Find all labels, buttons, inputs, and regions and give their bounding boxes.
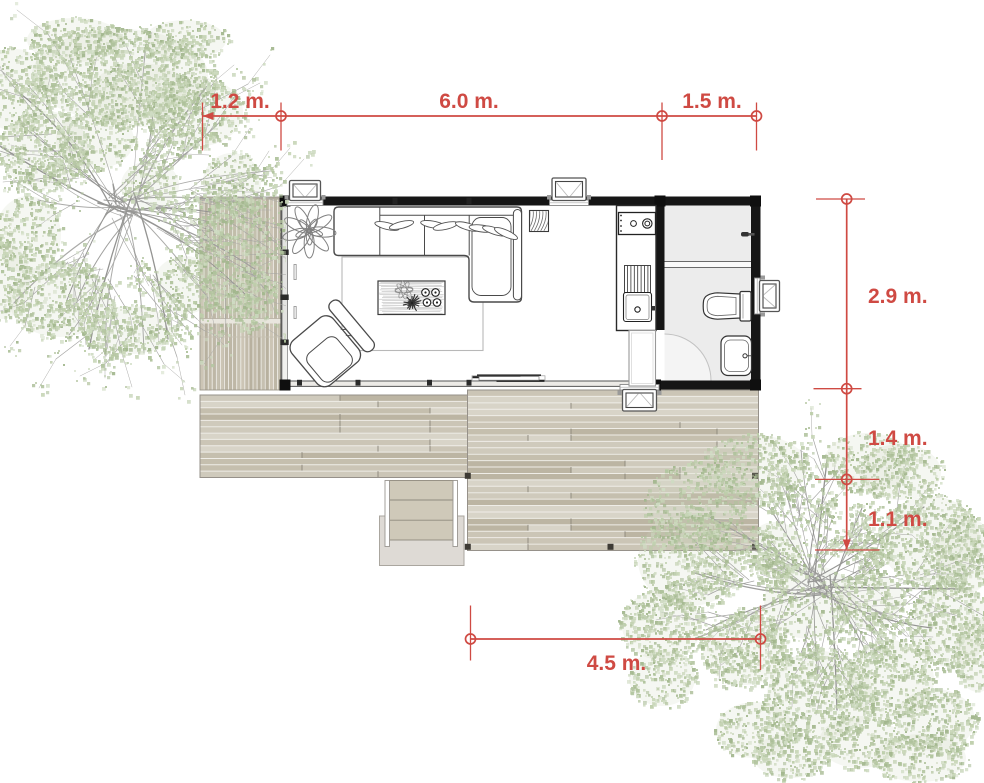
svg-text:4.5 m.: 4.5 m. <box>587 652 647 675</box>
svg-text:6.0 m.: 6.0 m. <box>439 90 499 113</box>
svg-text:1.2 m.: 1.2 m. <box>210 90 270 113</box>
svg-text:1.1 m.: 1.1 m. <box>868 508 928 531</box>
svg-text:2.9 m.: 2.9 m. <box>868 285 928 308</box>
svg-text:1.4 m.: 1.4 m. <box>868 427 928 450</box>
svg-text:1.5 m.: 1.5 m. <box>682 90 742 113</box>
